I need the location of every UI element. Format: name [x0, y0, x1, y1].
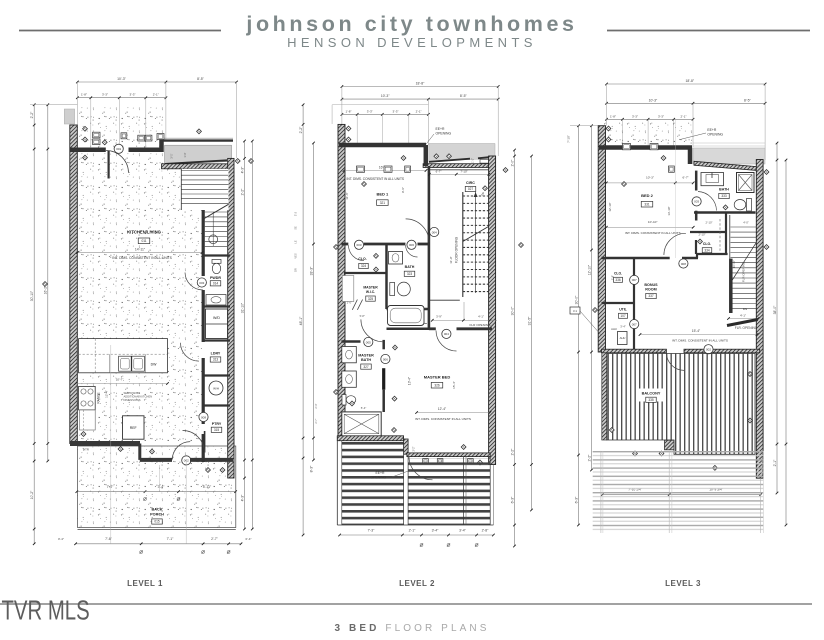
svg-text:10'-7": 10'-7" — [116, 378, 124, 382]
svg-text:10'-2": 10'-2" — [30, 490, 34, 499]
svg-text:003: 003 — [199, 281, 204, 285]
svg-text:12'-4": 12'-4" — [105, 390, 109, 398]
svg-text:13'-4": 13'-4" — [408, 377, 412, 385]
svg-text:002: 002 — [706, 348, 711, 352]
svg-text:SEE KIT FOR: SEE KIT FOR — [124, 391, 141, 395]
svg-text:8'-5": 8'-5" — [197, 77, 205, 81]
svg-text:2'-2": 2'-2" — [510, 448, 514, 456]
svg-text:FLOOR OPENING: FLOOR OPENING — [455, 236, 459, 263]
svg-text:325: 325 — [368, 297, 374, 301]
svg-text:2'-1": 2'-1" — [681, 114, 687, 118]
svg-text:3 BED FLOOR PLANS: 3 BED FLOOR PLANS — [335, 623, 490, 634]
svg-text:1'-2": 1'-2" — [472, 158, 475, 163]
svg-text:006: 006 — [383, 357, 388, 361]
svg-text:7'-6": 7'-6" — [105, 537, 113, 541]
svg-text:10'-3": 10'-3" — [646, 176, 654, 180]
svg-text:1'-8": 1'-8" — [346, 109, 352, 113]
svg-text:SE: SE — [294, 226, 298, 230]
svg-text:2'-10": 2'-10" — [705, 220, 712, 224]
svg-text:BONUS: BONUS — [644, 283, 658, 287]
svg-text:FLR OPENING: FLR OPENING — [742, 261, 746, 282]
svg-text:LEVEL 1: LEVEL 1 — [127, 579, 163, 588]
svg-text:001: 001 — [116, 147, 121, 151]
svg-text:BATH: BATH — [405, 265, 415, 269]
svg-text:33'-3": 33'-3" — [309, 266, 313, 275]
svg-text:3'-9": 3'-9" — [436, 315, 442, 319]
svg-text:014: 014 — [213, 282, 219, 286]
svg-text:4'-1": 4'-1" — [740, 313, 746, 317]
svg-text:003: 003 — [694, 200, 699, 204]
svg-text:johnson city townhomes: johnson city townhomes — [245, 12, 577, 36]
svg-text:MASTER: MASTER — [358, 353, 374, 357]
svg-text:FLR OPENING: FLR OPENING — [470, 323, 492, 327]
svg-text:007: 007 — [632, 322, 637, 326]
svg-text:2'-2": 2'-2" — [30, 111, 34, 119]
svg-text:008: 008 — [201, 415, 206, 419]
svg-text:5'-4": 5'-4" — [361, 406, 367, 410]
svg-text:EE+R: EE+R — [707, 128, 717, 132]
svg-text:027: 027 — [468, 187, 474, 191]
svg-text:LEVEL 2: LEVEL 2 — [399, 579, 435, 588]
svg-text:9'-6": 9'-6" — [401, 187, 405, 193]
svg-text:6'-3": 6'-3" — [510, 496, 514, 504]
svg-text:2'-7": 2'-7" — [211, 537, 219, 541]
svg-text:011: 011 — [141, 239, 146, 243]
svg-text:3'-3": 3'-3" — [367, 109, 373, 113]
svg-text:3'-2: 3'-2 — [294, 211, 298, 216]
svg-text:323: 323 — [407, 272, 413, 276]
svg-text:DIMENSIONS: DIMENSIONS — [124, 398, 141, 402]
svg-text:LE: LE — [294, 240, 298, 243]
svg-text:331: 331 — [644, 202, 650, 206]
svg-text:DN: DN — [743, 307, 747, 311]
svg-text:EE+R: EE+R — [376, 471, 386, 475]
svg-text:14'-11": 14'-11" — [135, 247, 146, 251]
svg-text:3'-3": 3'-3" — [130, 93, 136, 97]
svg-text:AHU: AHU — [620, 336, 626, 340]
svg-text:3.1: 3.1 — [573, 309, 577, 313]
svg-text:W/D: W/D — [213, 316, 220, 320]
svg-text:15'-4": 15'-4" — [692, 329, 701, 333]
svg-text:12'-10": 12'-10" — [608, 202, 612, 211]
svg-text:10'-10": 10'-10" — [648, 220, 658, 224]
svg-text:321: 321 — [380, 201, 386, 205]
svg-text:015: 015 — [154, 520, 160, 524]
svg-text:12'-10": 12'-10" — [587, 264, 591, 275]
svg-text:INT. DIMS. CONSISTENT IN ALL U: INT. DIMS. CONSISTENT IN ALL UNITS — [415, 417, 471, 421]
svg-text:ROOM: ROOM — [645, 287, 656, 291]
svg-text:CLO.: CLO. — [703, 242, 711, 246]
svg-text:8'-5": 8'-5" — [744, 98, 752, 102]
svg-text:REF: REF — [130, 426, 137, 430]
svg-text:HENSON DEVELOPMENTS: HENSON DEVELOPMENTS — [287, 35, 537, 50]
svg-text:2'-8": 2'-8" — [482, 528, 490, 532]
svg-text:326: 326 — [434, 383, 440, 387]
svg-text:11'-6": 11'-6" — [345, 192, 349, 199]
svg-text:BATH: BATH — [719, 188, 729, 192]
svg-text:3'-3": 3'-3" — [632, 114, 638, 118]
svg-text:INT. DIMS. CONSISTENT IN ALL U: INT. DIMS. CONSISTENT IN ALL UNITS — [347, 177, 405, 181]
svg-text:MASTER BED: MASTER BED — [424, 374, 451, 379]
svg-text:TVR MLS: TVR MLS — [2, 596, 90, 627]
svg-text:DW: DW — [151, 363, 158, 367]
svg-text:6'-7": 6'-7" — [436, 169, 442, 173]
svg-text:LEVEL 3: LEVEL 3 — [665, 579, 701, 588]
svg-text:PORCH: PORCH — [150, 512, 164, 516]
svg-text:1'-3": 1'-3" — [183, 152, 187, 157]
svg-text:OPENING: OPENING — [707, 133, 723, 137]
svg-text:3'-2": 3'-2" — [413, 446, 416, 451]
svg-text:BED 1: BED 1 — [377, 191, 390, 196]
svg-text:337: 337 — [648, 294, 654, 298]
svg-text:15'-4": 15'-4" — [452, 381, 456, 389]
svg-text:3'-3": 3'-3" — [102, 93, 108, 97]
svg-text:VES: VES — [294, 253, 298, 258]
svg-text:2'-1": 2'-1" — [773, 459, 777, 467]
svg-text:8'-3": 8'-3" — [309, 465, 313, 473]
svg-text:2'-2": 2'-2" — [240, 188, 244, 196]
svg-text:334: 334 — [704, 248, 710, 252]
svg-text:38'-0": 38'-0" — [773, 305, 777, 314]
svg-text:11'-9": 11'-9" — [449, 256, 453, 263]
svg-text:BACK: BACK — [152, 508, 163, 512]
svg-text:2'-2": 2'-2" — [587, 454, 591, 462]
svg-text:333: 333 — [721, 194, 727, 198]
svg-text:2'-0": 2'-0" — [510, 159, 514, 167]
svg-text:3'-4": 3'-4" — [459, 528, 467, 532]
svg-text:005: 005 — [366, 340, 371, 344]
svg-text:18'-8": 18'-8" — [416, 82, 425, 86]
svg-text:BED 2: BED 2 — [641, 193, 654, 198]
svg-text:AHU: AHU — [611, 327, 617, 331]
svg-text:2'-1": 2'-1" — [409, 528, 417, 532]
svg-text:FLR. OPENING: FLR. OPENING — [735, 326, 758, 330]
svg-text:13'-10": 13'-10" — [667, 206, 671, 215]
svg-text:2'-8": 2'-8" — [611, 275, 615, 280]
svg-text:18'-8": 18'-8" — [685, 79, 694, 83]
svg-text:2'-2": 2'-2" — [299, 126, 303, 134]
svg-text:2'-7": 2'-7" — [314, 418, 318, 423]
svg-text:003: 003 — [356, 243, 361, 247]
svg-text:BALCONY: BALCONY — [642, 391, 661, 395]
svg-text:335: 335 — [648, 398, 654, 402]
svg-text:W/H: W/H — [213, 386, 219, 390]
svg-text:0'-4": 0'-4" — [246, 537, 252, 541]
svg-text:10'-3": 10'-3" — [649, 98, 658, 102]
svg-text:1'-8": 1'-8" — [610, 114, 616, 118]
svg-text:1'-8": 1'-8" — [81, 93, 87, 97]
svg-text:10'-3": 10'-3" — [381, 94, 390, 98]
svg-text:6'-3": 6'-3" — [574, 496, 578, 504]
svg-text:31'-5": 31'-5" — [527, 316, 531, 325]
svg-text:004: 004 — [432, 230, 437, 234]
svg-text:5'-8": 5'-8" — [360, 314, 365, 318]
svg-text:2'-1": 2'-1" — [153, 93, 159, 97]
svg-text:336: 336 — [615, 278, 621, 282]
svg-text:PWDR: PWDR — [210, 276, 221, 280]
svg-text:* INT. DIMS. CONSISTENT IN ALL: * INT. DIMS. CONSISTENT IN ALL UNITS — [110, 256, 173, 260]
svg-text:3'-1": 3'-1" — [170, 153, 174, 158]
svg-text:OPENING: OPENING — [436, 131, 452, 135]
svg-text:3'-4": 3'-4" — [620, 325, 626, 329]
svg-text:12'-4": 12'-4" — [438, 407, 447, 411]
svg-text:10'-10": 10'-10" — [732, 260, 736, 268]
svg-text:4'-1": 4'-1" — [478, 315, 484, 319]
svg-text:KITCHEN/LIVING: KITCHEN/LIVING — [127, 230, 161, 235]
svg-text:8'-5": 8'-5" — [460, 94, 468, 98]
svg-text:UTIL: UTIL — [619, 308, 627, 312]
svg-text:ADDITIONAL KITCHEN: ADDITIONAL KITCHEN — [124, 394, 153, 398]
svg-text:30'-0": 30'-0" — [574, 295, 578, 304]
svg-text:7'-10": 7'-10" — [460, 169, 467, 173]
svg-text:DR: DR — [294, 268, 298, 272]
svg-text:HTR: HTR — [83, 448, 89, 452]
svg-text:4'-3": 4'-3" — [240, 166, 244, 174]
svg-text:LDRY: LDRY — [211, 352, 221, 356]
svg-text:007: 007 — [632, 278, 637, 282]
svg-text:PTRY: PTRY — [212, 422, 222, 426]
svg-text:RANGE: RANGE — [96, 392, 100, 403]
svg-text:107: 107 — [620, 314, 626, 318]
svg-text:CIRC: CIRC — [466, 181, 475, 185]
svg-text:3'-3": 3'-3" — [658, 114, 664, 118]
svg-text:INT. DIMS. CONSISTENT IN ALL U: INT. DIMS. CONSISTENT IN ALL UNITS — [625, 231, 681, 235]
svg-text:6'-7": 6'-7" — [683, 176, 689, 180]
svg-text:W.I.C.: W.I.C. — [366, 290, 375, 294]
svg-text:4'-0": 4'-0" — [743, 220, 749, 224]
svg-text:315: 315 — [214, 428, 220, 432]
svg-text:324: 324 — [361, 264, 367, 268]
svg-text:2'-1": 2'-1" — [416, 109, 422, 113]
svg-text:2'-10": 2'-10" — [698, 233, 705, 237]
svg-text:006: 006 — [409, 243, 414, 247]
svg-text:2'-3": 2'-3" — [314, 403, 318, 408]
svg-text:7'-1": 7'-1" — [167, 537, 175, 541]
svg-text:3'-4": 3'-4" — [432, 528, 440, 532]
svg-text:4'-3": 4'-3" — [240, 494, 244, 502]
svg-text:008: 008 — [681, 262, 686, 266]
svg-text:0'-4": 0'-4" — [58, 537, 64, 541]
svg-text:004: 004 — [444, 332, 449, 336]
svg-text:CLO.: CLO. — [614, 272, 622, 276]
svg-text:30'-0": 30'-0" — [510, 306, 514, 315]
svg-text:327: 327 — [363, 365, 369, 369]
svg-text:30'-10": 30'-10" — [30, 290, 34, 301]
svg-text:OPENING: OPENING — [371, 476, 387, 480]
svg-text:3'-3": 3'-3" — [393, 109, 399, 113]
svg-text:002: 002 — [184, 459, 189, 463]
svg-text:7'-10": 7'-10" — [567, 135, 571, 143]
svg-text:313: 313 — [213, 358, 219, 362]
svg-text:INT. DIMS. CONSISTENT IN ALL U: INT. DIMS. CONSISTENT IN ALL UNITS — [672, 338, 728, 342]
svg-text:7'-3": 7'-3" — [368, 528, 376, 532]
svg-text:48'-1": 48'-1" — [299, 316, 303, 325]
svg-text:31'-10": 31'-10" — [240, 302, 244, 313]
svg-text:BATH: BATH — [361, 358, 371, 362]
svg-text:10'-3": 10'-3" — [117, 77, 126, 81]
